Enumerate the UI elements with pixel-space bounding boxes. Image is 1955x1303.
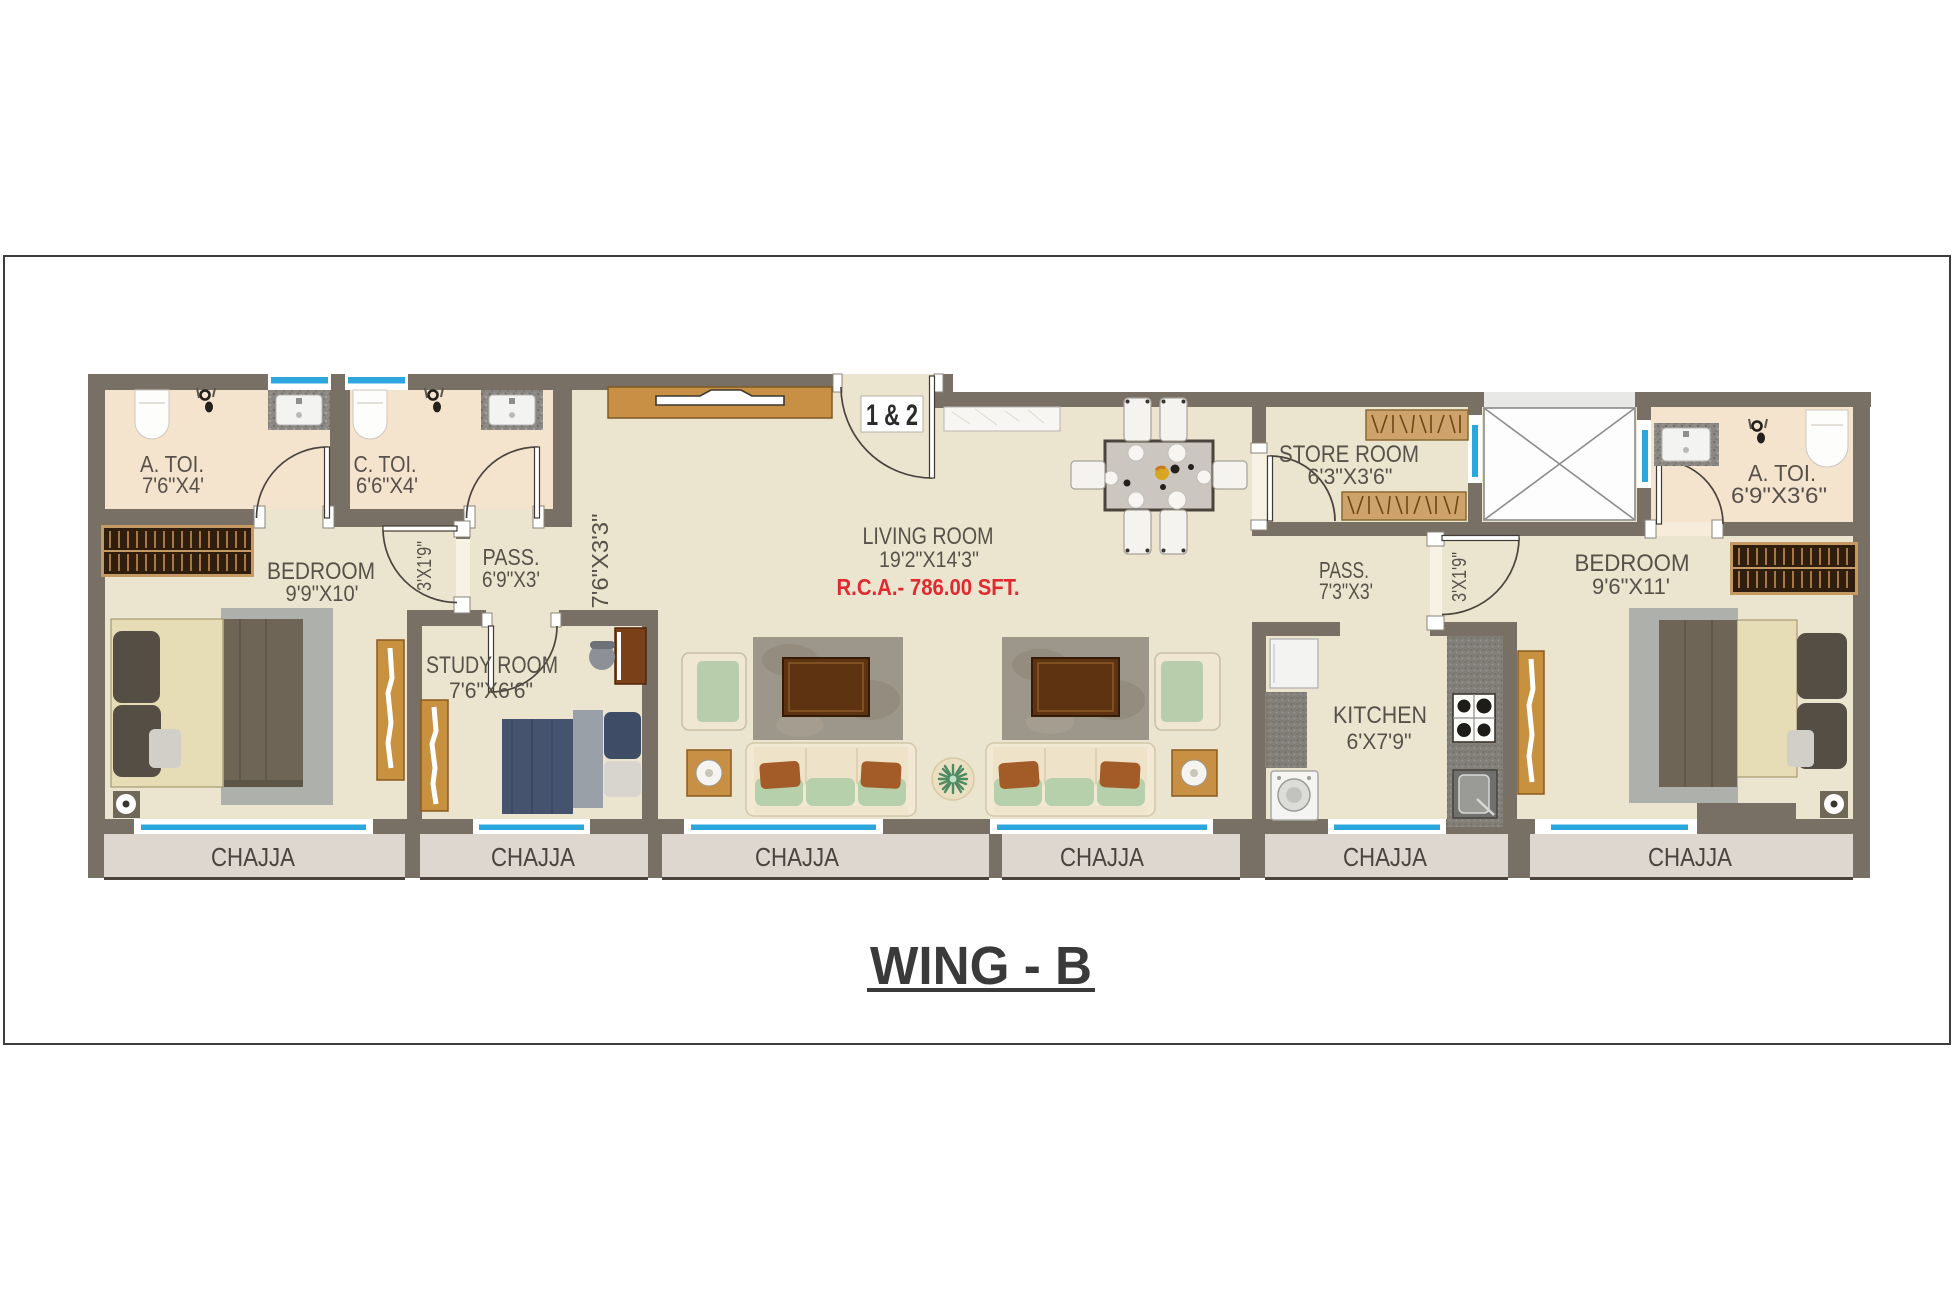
svg-text:1 & 2: 1 & 2 — [866, 399, 918, 432]
svg-text:CHAJJA: CHAJJA — [491, 842, 576, 872]
svg-text:6'9"X3'6": 6'9"X3'6" — [1731, 483, 1827, 508]
svg-text:STUDY ROOM: STUDY ROOM — [426, 652, 558, 679]
svg-text:6'6"X4': 6'6"X4' — [356, 473, 418, 498]
svg-text:9'6"X11': 9'6"X11' — [1592, 574, 1670, 599]
svg-text:7'6"X4': 7'6"X4' — [142, 473, 204, 498]
svg-text:7'6"X6'6": 7'6"X6'6" — [449, 678, 533, 703]
svg-text:BEDROOM: BEDROOM — [1575, 550, 1690, 577]
svg-text:19'2"X14'3": 19'2"X14'3" — [879, 547, 979, 572]
svg-text:CHAJJA: CHAJJA — [1343, 842, 1428, 872]
svg-text:WING - B: WING - B — [870, 936, 1092, 996]
svg-text:6'9"X3': 6'9"X3' — [482, 567, 540, 592]
svg-text:CHAJJA: CHAJJA — [755, 842, 840, 872]
svg-text:3'X1'9": 3'X1'9" — [1449, 552, 1471, 602]
svg-text:CHAJJA: CHAJJA — [1648, 842, 1733, 872]
svg-text:CHAJJA: CHAJJA — [1060, 842, 1145, 872]
svg-text:R.C.A.- 786.00 SFT.: R.C.A.- 786.00 SFT. — [837, 574, 1020, 600]
svg-text:3'X1'9": 3'X1'9" — [414, 541, 436, 591]
svg-text:7'6"X3'3": 7'6"X3'3" — [587, 514, 613, 609]
svg-text:9'9"X10': 9'9"X10' — [286, 581, 359, 606]
svg-text:7'3"X3': 7'3"X3' — [1319, 579, 1373, 604]
svg-text:KITCHEN: KITCHEN — [1333, 702, 1427, 729]
svg-text:LIVING ROOM: LIVING ROOM — [863, 523, 994, 550]
svg-text:6'X7'9": 6'X7'9" — [1347, 729, 1412, 754]
svg-text:6'3"X3'6": 6'3"X3'6" — [1308, 464, 1393, 489]
svg-text:CHAJJA: CHAJJA — [211, 842, 296, 872]
